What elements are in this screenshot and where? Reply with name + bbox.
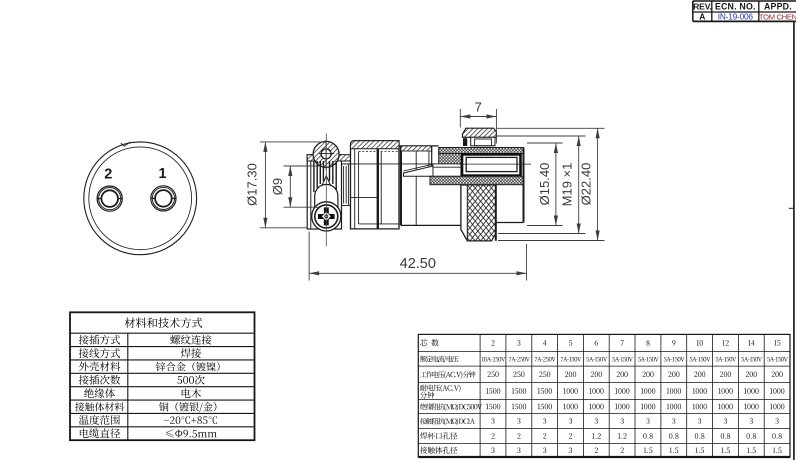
svg-text:TOM CHEN: TOM CHEN <box>759 12 796 21</box>
svg-text:1: 1 <box>159 166 167 182</box>
svg-text:2: 2 <box>104 167 112 183</box>
svg-text:7: 7 <box>475 100 482 115</box>
svg-text:ECN. NO.: ECN. NO. <box>715 2 756 12</box>
svg-text:Ø15.40: Ø15.40 <box>537 163 552 206</box>
svg-text:APPD.: APPD. <box>764 2 792 12</box>
svg-text:IN-19-006: IN-19-006 <box>718 12 754 22</box>
svg-text:Ø22.40: Ø22.40 <box>579 163 594 206</box>
svg-text:42.50: 42.50 <box>400 256 436 272</box>
svg-text:REV.: REV. <box>693 2 711 12</box>
svg-text:Ø9: Ø9 <box>270 178 285 195</box>
svg-text:A: A <box>699 12 705 22</box>
svg-text:Ø17.30: Ø17.30 <box>245 163 260 206</box>
svg-text:M19 ×1: M19 ×1 <box>560 163 575 207</box>
